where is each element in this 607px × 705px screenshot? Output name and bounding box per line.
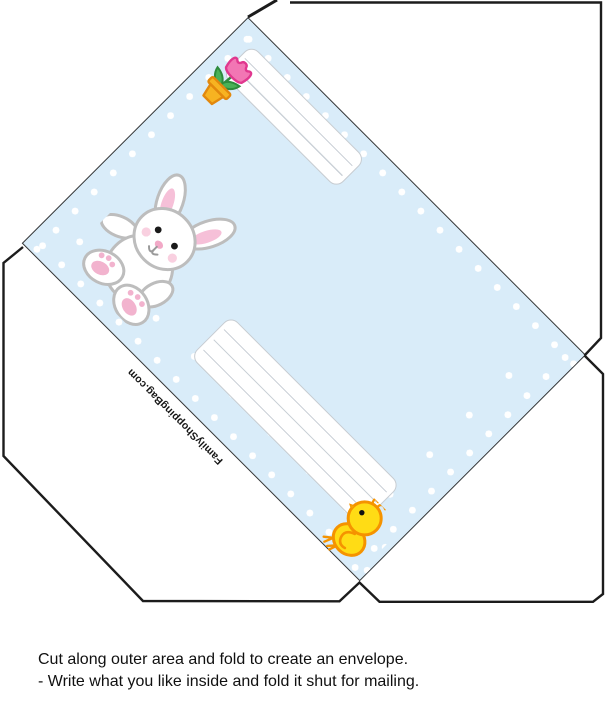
bunny-illustration [63,154,254,345]
polka-dot-border-top [235,25,580,370]
instructions-line-2: - Write what you like inside and fold it… [38,671,419,693]
printable-envelope-template: FamilyShoppingBag.com Cut along outer ar… [0,0,607,705]
envelope-front: FamilyShoppingBag.com [22,17,586,581]
instructions-line-1: Cut along outer area and fold to create … [38,649,419,671]
closure-flap-fold-edge [248,0,277,17]
instructions: Cut along outer area and fold to create … [38,649,419,693]
